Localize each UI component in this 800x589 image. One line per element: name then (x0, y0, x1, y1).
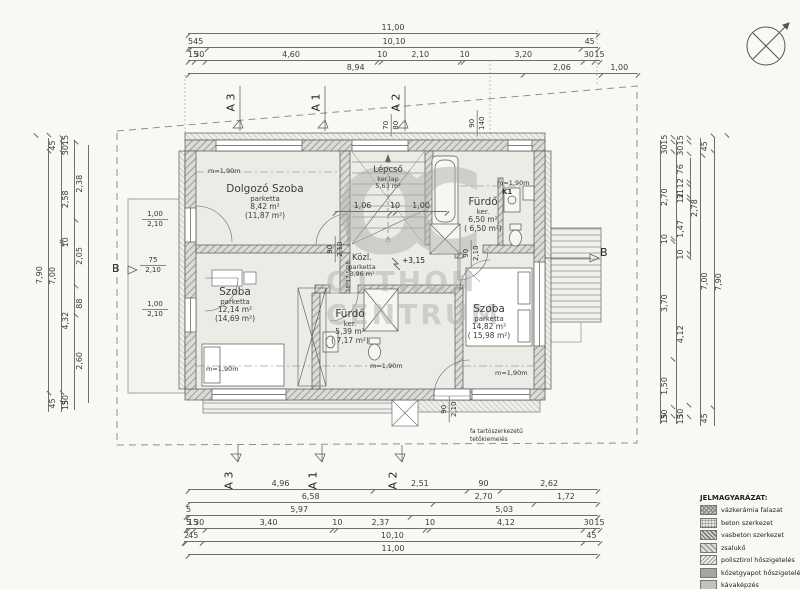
legend-item-kavakepzes: kávaképzés (700, 580, 798, 589)
legend: JELMAGYARÁZAT: vázkerámia falazat beton … (700, 494, 798, 589)
roof-structure-note: fa tartószerkezetű tetőkiemelés (470, 429, 523, 444)
legend-swatch-hatch-icon (700, 543, 717, 553)
opening-size-left-2: 752,10 (140, 256, 166, 275)
balcony-strip-left (203, 400, 392, 413)
section-marker-a2-top: A 2 (390, 93, 403, 111)
headroom-label-2: m=1,90m (497, 179, 530, 187)
headroom-label-5: m=1,90m (495, 369, 528, 377)
legend-item-beton: beton szerkezet (700, 518, 798, 528)
legend-title: JELMAGYARÁZAT: (700, 494, 798, 502)
legend-swatch-solid-dark-icon (700, 568, 717, 578)
legend-swatch-hatch-dense-icon (700, 530, 717, 540)
balcony-strip-right (418, 400, 540, 412)
legend-item-vasbeton: vasbeton szerkezet (700, 530, 798, 540)
legend-item-zsaluko: zsalukő (700, 543, 798, 553)
terrace-right (545, 228, 601, 322)
north-arrow-icon (747, 23, 789, 65)
opening-size-left-1: 1,002,10 (142, 210, 168, 229)
room-label-szoba-right: Szoba parketta 14,82 m² ( 15,98 m²) (455, 303, 523, 340)
legend-swatch-crosshatch-icon (700, 505, 717, 515)
room-label-furdo-top: Fürdő ker. 6,50 m² ( 6,50 m²) (448, 196, 518, 233)
opening-size-door-2: 902,10 (462, 240, 481, 266)
legend-item-polisztirol: polisztirol hőszigetelés (700, 555, 798, 565)
room-label-furdo-bottom: Fürdő ker. 5,39 m² ( 7,17 m²) (316, 308, 384, 345)
legend-item-kozetgyapot: kőzetgyapot hőszigetelés (700, 568, 798, 578)
section-marker-a1-bottom: A 1 (307, 471, 320, 489)
section-marker-a2-bottom: A 2 (387, 471, 400, 489)
opening-size-door-3: 902,10 (440, 396, 459, 422)
room-label-lepcso: Lépcső ker.lap 5,63 m² (352, 166, 424, 191)
section-marker-a1-top: A 1 (310, 93, 323, 111)
floor-level-mark: +3,15 (402, 256, 425, 265)
opening-size-left-3: 1,002,10 (142, 300, 168, 319)
headroom-label-1: m=1,90m (208, 167, 241, 175)
legend-item-vazkeramia: vázkerámia falazat (700, 505, 798, 515)
legend-swatch-hatch-light-icon (700, 555, 717, 565)
fixture-label-k1: K1 (502, 188, 512, 196)
section-marker-a3-bottom: A 3 (223, 471, 236, 489)
headroom-label-3: m=1,90m (206, 365, 239, 373)
floor-plan-drawing (0, 0, 800, 589)
room-label-szoba-left: Szoba parketta 12,14 m² (14,69 m²) (178, 286, 292, 323)
headroom-label-4: m=1,90m (370, 362, 403, 370)
legend-swatch-dots-icon (700, 518, 717, 528)
section-marker-b-right: B (600, 246, 608, 259)
opening-size-door-1: 902,10 (326, 236, 345, 262)
stair-spec-label: 18*17,5/28 (346, 261, 352, 292)
legend-swatch-solid-light-icon (700, 580, 717, 589)
opening-size-top-1: 7080 (382, 114, 401, 136)
section-marker-a3-top: A 3 (225, 93, 238, 111)
chimney (392, 400, 418, 426)
room-label-dolgozo: Dolgozó Szoba parketta 8,42 m² (11,87 m²… (205, 183, 325, 220)
floor-plan-sheet: OC OTTHON CENTRUM Dolgozó Szoba parketta… (0, 0, 800, 589)
section-marker-b-left: B (112, 262, 120, 275)
opening-size-top-2: 90140 (468, 110, 487, 136)
